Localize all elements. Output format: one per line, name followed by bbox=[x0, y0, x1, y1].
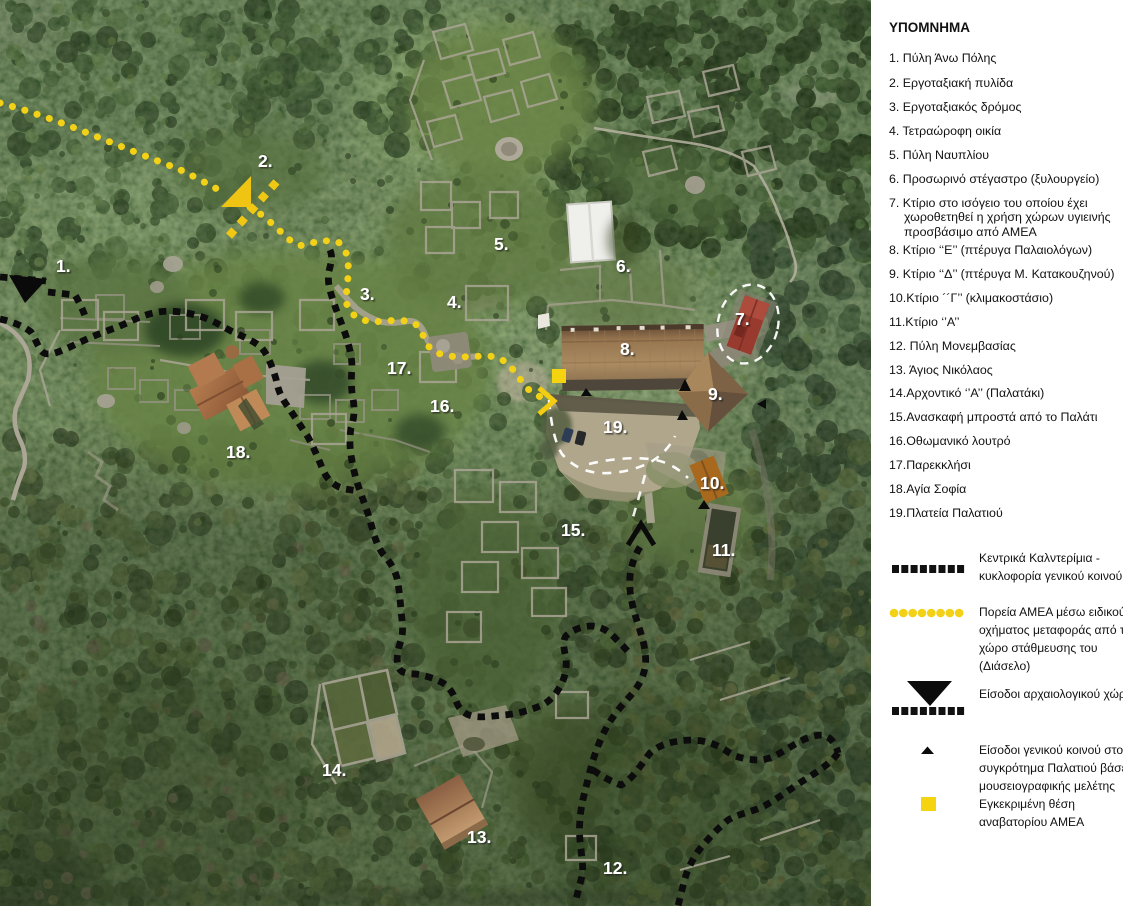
svg-text:3.: 3. bbox=[360, 284, 375, 304]
svg-text:10.: 10. bbox=[700, 473, 724, 493]
svg-text:1.: 1. bbox=[56, 256, 71, 276]
svg-text:11.: 11. bbox=[712, 540, 735, 560]
svg-text:19.: 19. bbox=[603, 417, 627, 437]
svg-text:14.: 14. bbox=[322, 760, 346, 780]
svg-text:12.: 12. bbox=[603, 858, 627, 878]
svg-text:13.: 13. bbox=[467, 827, 491, 847]
svg-text:9.: 9. bbox=[708, 384, 723, 404]
svg-text:16.: 16. bbox=[430, 396, 454, 416]
svg-text:8.: 8. bbox=[620, 339, 635, 359]
svg-text:18.: 18. bbox=[226, 442, 250, 462]
svg-text:2.: 2. bbox=[258, 151, 273, 171]
svg-text:7.: 7. bbox=[735, 309, 750, 329]
svg-text:15.: 15. bbox=[561, 520, 585, 540]
svg-text:6.: 6. bbox=[616, 256, 631, 276]
svg-text:5.: 5. bbox=[494, 234, 509, 254]
svg-text:4.: 4. bbox=[447, 292, 462, 312]
svg-text:17.: 17. bbox=[387, 358, 411, 378]
